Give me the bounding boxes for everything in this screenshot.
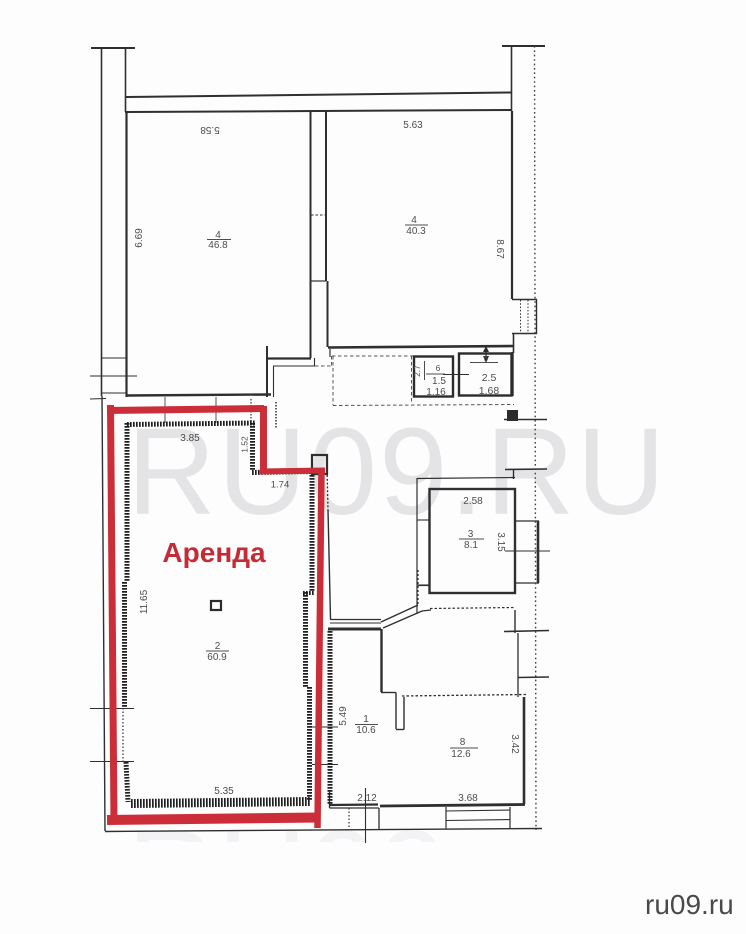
svg-text:5.63: 5.63: [403, 120, 423, 131]
svg-text:1.5: 1.5: [432, 376, 446, 387]
svg-text:3.85: 3.85: [180, 433, 200, 444]
svg-text:6.69: 6.69: [134, 228, 145, 248]
svg-text:4: 4: [411, 215, 417, 226]
svg-text:2.5: 2.5: [482, 372, 497, 384]
svg-text:1.74: 1.74: [271, 480, 290, 491]
svg-text:12.6: 12.6: [451, 749, 471, 760]
svg-text:2.58: 2.58: [463, 496, 483, 507]
svg-text:3: 3: [468, 529, 474, 540]
svg-text:1.68: 1.68: [479, 385, 500, 397]
svg-text:40.3: 40.3: [406, 226, 426, 237]
svg-text:RU09.RU: RU09.RU: [127, 806, 667, 934]
svg-text:8: 8: [460, 737, 466, 748]
svg-text:6: 6: [436, 363, 441, 373]
svg-text:Аренда: Аренда: [162, 537, 266, 568]
svg-text:10.6: 10.6: [356, 725, 376, 736]
svg-text:46.8: 46.8: [208, 240, 228, 251]
svg-text:11.65: 11.65: [139, 589, 150, 614]
svg-text:1: 1: [363, 714, 369, 725]
svg-text:5.49: 5.49: [338, 706, 349, 726]
svg-text:3.15: 3.15: [495, 532, 506, 552]
svg-text:8.1: 8.1: [464, 540, 478, 551]
svg-text:5: 5: [484, 354, 488, 363]
svg-text:1.52: 1.52: [240, 436, 250, 453]
svg-text:3.42: 3.42: [509, 734, 520, 754]
svg-text:5.58: 5.58: [200, 124, 220, 135]
svg-text:2.12: 2.12: [357, 793, 377, 804]
svg-text:8.67: 8.67: [494, 239, 505, 259]
svg-text:3.68: 3.68: [458, 793, 478, 804]
svg-text:ru09.ru: ru09.ru: [645, 889, 734, 920]
svg-text:2.7: 2.7: [412, 365, 422, 377]
svg-text:2: 2: [215, 641, 221, 652]
svg-text:5.35: 5.35: [214, 786, 234, 797]
svg-text:1.16: 1.16: [426, 387, 446, 398]
svg-text:60.9: 60.9: [207, 652, 227, 663]
